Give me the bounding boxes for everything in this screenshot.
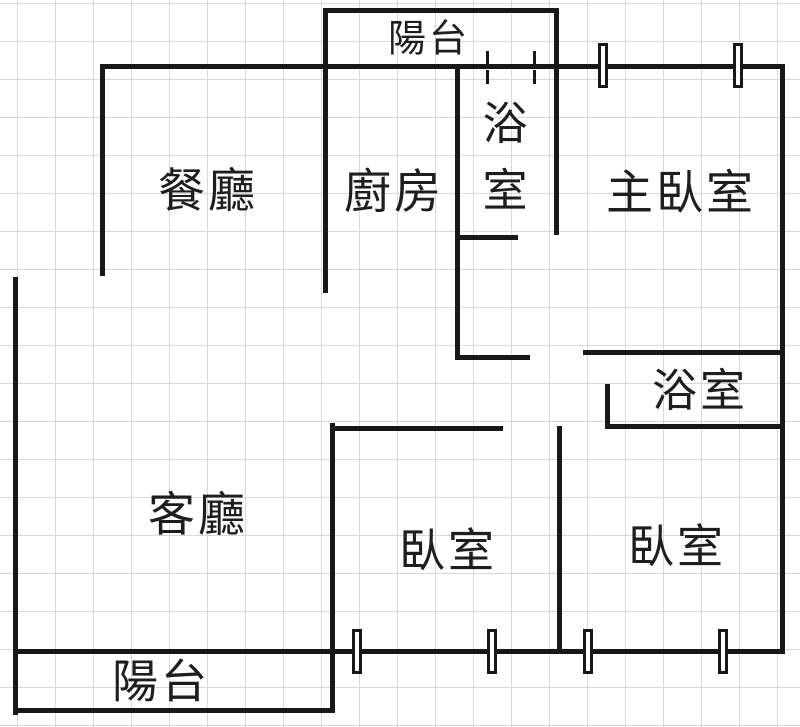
bathroom1-opening-tick-icon <box>486 70 489 84</box>
room-label-bottom-balcony: 陽台 <box>112 659 210 706</box>
kitchen-left-wall <box>323 8 328 293</box>
bathroom1-opening-tick-icon <box>486 51 489 64</box>
bathroom1-right-wall <box>554 8 559 235</box>
room-label-living-room: 客廳 <box>148 492 248 540</box>
bedroom1-top-wall <box>330 426 503 431</box>
room-label-kitchen: 廚房 <box>344 169 444 217</box>
kitchen-right-wall <box>455 64 460 360</box>
floor-plan: 陽台 餐廳 廚房 浴 室 主臥室 浴室 客廳 臥室 臥室 陽台 <box>0 0 800 727</box>
room-label-top-balcony: 陽台 <box>388 20 470 59</box>
top-balcony-top-wall <box>323 8 559 13</box>
dining-room-left-wall <box>100 64 105 276</box>
room-label-bathroom-1: 浴 室 <box>482 90 527 224</box>
bedroom-divider-wall <box>557 426 562 653</box>
bedroom2-window-left-icon <box>583 629 593 674</box>
master-bedroom-window-right-icon <box>733 43 743 88</box>
left-outer-wall <box>13 277 18 715</box>
room-label-bedroom-2: 臥室 <box>628 524 726 571</box>
bottom-outer-wall <box>13 649 785 654</box>
balcony-bottom-wall <box>13 708 335 713</box>
bathroom2-left-wall <box>605 384 610 429</box>
bathroom1-bottom-wall <box>455 235 518 240</box>
bathroom2-bottom-wall <box>605 424 785 429</box>
bedroom1-left-wall <box>330 423 335 713</box>
master-bedroom-window-left-icon <box>598 43 608 88</box>
room-label-dining-room: 餐廳 <box>158 168 258 216</box>
room-label-bedroom-1: 臥室 <box>399 528 497 575</box>
bedroom1-window-left-icon <box>352 629 362 674</box>
room-label-bathroom-2: 浴室 <box>652 368 748 414</box>
bathroom1-opening-tick-icon <box>533 51 536 64</box>
bathroom1-opening-tick-icon <box>533 70 536 84</box>
hallway-wall <box>455 355 530 360</box>
right-outer-wall <box>780 64 785 653</box>
bedroom2-window-right-icon <box>718 629 728 674</box>
bedroom1-window-right-icon <box>487 629 497 674</box>
top-outer-wall <box>100 64 785 69</box>
room-label-master-bedroom: 主臥室 <box>606 170 756 218</box>
master-bedroom-bottom-wall <box>583 350 785 355</box>
floor-plan-layer: 陽台 餐廳 廚房 浴 室 主臥室 浴室 客廳 臥室 臥室 陽台 <box>0 0 800 727</box>
